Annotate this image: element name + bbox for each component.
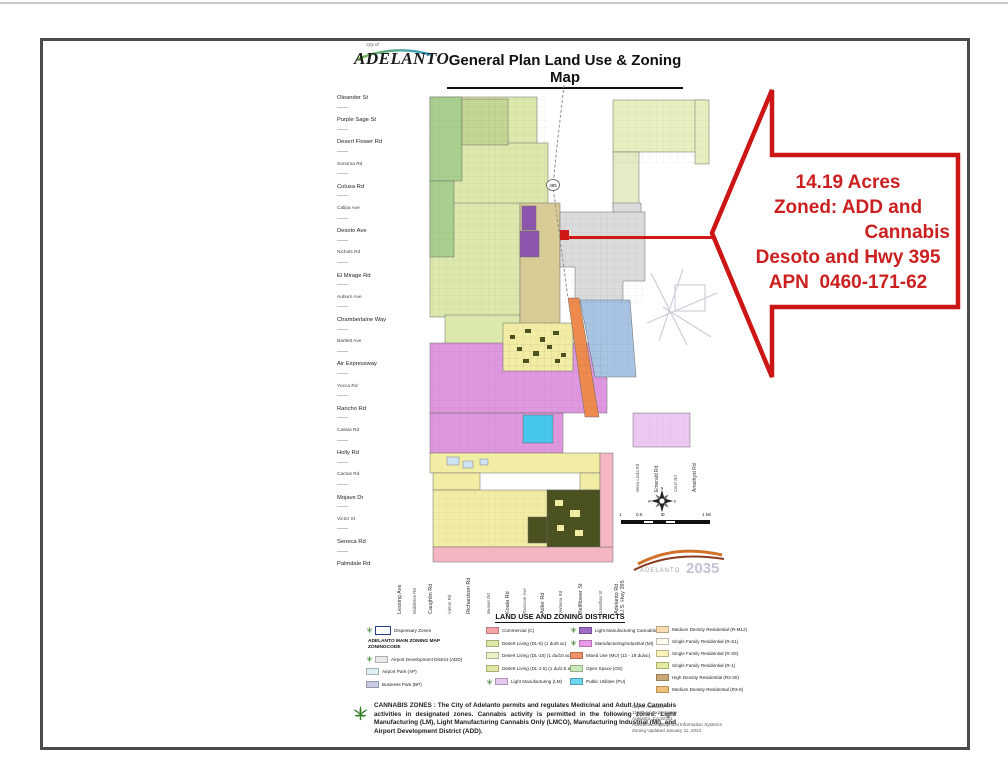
legend-row: Medium Density Residential (R3-8) [656, 683, 747, 695]
legend-title: LAND USE AND ZONING DISTRICTS [430, 606, 690, 624]
street-label: Purple Sage St [337, 117, 376, 123]
legend-label: Airport Development District (ADD) [391, 657, 462, 662]
page-title: General Plan Land Use & Zoning Map [447, 52, 683, 89]
logo-city-of: City of [366, 42, 379, 47]
legend-row: High Density Residential (R3-30) [656, 672, 747, 684]
street-label: Air Expressway [337, 361, 377, 367]
street-label: Desert Flower Rd [337, 139, 382, 145]
legend-label: Manufacturing/Industrial (MI) [595, 641, 653, 646]
legend-label: Mixed Use (MU) (12 - 18 du/ac) [586, 653, 650, 658]
street-minor-bar [337, 462, 348, 463]
legend-row: Desert Living (DL-2.5) (1 du/2.5 ac) [486, 662, 574, 675]
legend-swatch [495, 678, 508, 685]
street-minor-bar [337, 218, 348, 219]
legend-label: Medium Density Residential (R3-8) [672, 687, 743, 692]
street-label: Mojave Dr [337, 495, 363, 501]
legend-column: Medium Density Residential (R-M12)Single… [656, 624, 747, 695]
logo-name: ADELANTO [354, 49, 449, 69]
cannabis-leaf-icon [366, 655, 373, 663]
legend-label: Commercial (C) [502, 628, 534, 633]
street-label: Middleton Rd [412, 556, 417, 614]
street-minor-bar [337, 373, 348, 374]
legend-row: Single Family Residential (R-S1) [656, 636, 747, 648]
legend-label: Light Manufacturing (LM) [511, 679, 562, 684]
legend-label: Business Park (BP) [382, 682, 422, 687]
legend-row: Single Family Residential (R-1) [656, 660, 747, 672]
page: City of ADELANTO General Plan Land Use &… [0, 0, 1008, 778]
street-label: Auburn Ave [337, 295, 362, 300]
legend-row: Business Park (BP) [366, 678, 462, 691]
callout-line-acres: 14.19 Acres [742, 170, 954, 195]
legend-label: Public Utilities (PU) [586, 679, 625, 684]
legend-swatch [570, 665, 583, 672]
scale-label: 1 [619, 512, 622, 517]
cannabis-note: CANNABIS ZONES : The City of Adelanto pe… [374, 702, 676, 736]
street-label: Amethyst Rd [692, 440, 698, 492]
street-label: Victor St [337, 517, 355, 522]
legend-swatch [375, 656, 388, 663]
legend-column: Commercial (C)Desert Living (DL-5) (1 du… [486, 624, 574, 688]
street-label: Court Rd [673, 440, 678, 492]
street-minor-bar [337, 440, 348, 441]
scale-label: 1 Mi [702, 512, 711, 517]
cannabis-leaf-icon [366, 626, 373, 634]
street-minor-bar [337, 417, 348, 418]
legend-label: Single Family Residential (R-S1) [672, 639, 738, 644]
legend-swatch [366, 681, 379, 688]
street-label: Cassia Rd [337, 428, 359, 433]
legend-row: Light Manufacturing Cannabis Only [570, 624, 667, 637]
svg-text:ADELANTO: ADELANTO [640, 568, 680, 574]
legend-row: Medium Density Residential (R-M12) [656, 624, 747, 636]
street-minor-bar [337, 395, 348, 396]
legend-row: Light Manufacturing (LM) [486, 675, 574, 688]
top-divider [0, 2, 1008, 4]
legend-swatch [486, 640, 499, 647]
legend-label: Dispensary Zones [394, 628, 431, 633]
street-minor-bar [337, 129, 348, 130]
zoning-map-header-line: ZONINGCODE [368, 645, 462, 652]
street-minor-bar [337, 107, 348, 108]
scale-label: 0.5 [636, 512, 642, 517]
legend-swatch [570, 652, 583, 659]
street-label: Colusa Rd [337, 184, 364, 190]
street-minor-bar [337, 240, 348, 241]
legend-label: Open Space (OS) [586, 666, 623, 671]
svg-text:W: W [648, 499, 652, 503]
street-label: Bartlett Ave [337, 339, 361, 344]
street-minor-bar [337, 151, 348, 152]
legend-swatch [366, 668, 379, 675]
legend-column: Light Manufacturing Cannabis OnlyManufac… [570, 624, 667, 688]
legend-row: Public Utilities (PU) [570, 675, 667, 688]
street-minor-bar [337, 329, 348, 330]
legend-row: Commercial (C) [486, 624, 574, 637]
scale-label: 0 [662, 512, 665, 517]
legend-label: Airport Park (AP) [382, 669, 417, 674]
street-label: Yucca Rd [337, 384, 358, 389]
cannabis-leaf-icon [570, 639, 577, 647]
legend-row: Open Space (OS) [570, 662, 667, 675]
legend-swatch [656, 650, 669, 657]
legend-swatch [570, 678, 583, 685]
street-label: El Mirage Rd [337, 273, 371, 279]
highway-shield: 395 [547, 180, 560, 191]
street-minor-bar [337, 484, 348, 485]
street-label: Sonoma Rd [337, 162, 362, 167]
street-label: Palmdale Rd [337, 561, 370, 567]
legend-swatch [486, 652, 499, 659]
legend-swatch [656, 638, 669, 645]
street-minor-bar [337, 306, 348, 307]
legend-swatch [656, 686, 669, 693]
callout-line-apn: APN 0460-171-62 [742, 270, 954, 295]
street-label: Mesa Linda Rd [635, 440, 640, 492]
svg-text:2035: 2035 [686, 560, 719, 577]
street-label: Emerald Rd [654, 440, 660, 492]
svg-text:395: 395 [549, 183, 557, 188]
legend-label: Single Family Residential (R-S5) [672, 651, 738, 656]
legend-swatch [486, 627, 499, 634]
credits-block: City of Adelanto11600 Air ExpresswayAdel… [632, 704, 762, 734]
legend-swatch [579, 627, 592, 634]
legend-row: Dispensary Zones [366, 624, 462, 637]
legend-swatch [579, 640, 592, 647]
legend-row: Mixed Use (MU) (12 - 18 du/ac) [570, 650, 667, 663]
street-label: Calipa Ave [337, 206, 360, 211]
legend-row: Airport Park (AP) [366, 666, 462, 679]
legend-row: Desert Living (DL-10) (1 du/10 ac) [486, 650, 574, 663]
legend-column: Dispensary ZonesADELANTO MAIN ZONING MAP… [366, 624, 462, 691]
street-label: Seneca Rd [337, 539, 366, 545]
street-label: Nichols Rd [337, 250, 360, 255]
callout-line-location: Desoto and Hwy 395 [742, 245, 954, 270]
credit-line: Zoning Updated January 11, 2024 [632, 728, 762, 734]
legend-swatch [375, 626, 391, 635]
street-minor-bar [337, 528, 348, 529]
street-minor-bar [337, 506, 348, 507]
street-label: Lessing Ave [397, 556, 403, 614]
legend-label: Medium Density Residential (R-M12) [672, 627, 747, 632]
svg-text:E: E [674, 499, 676, 503]
svg-text:N: N [661, 486, 664, 490]
street-label: Rancho Rd [337, 406, 366, 412]
plan-2035-logo: ADELANTO 2035 [630, 546, 730, 578]
scale-bar: 1 0.5 0 1 Mi [618, 512, 728, 528]
street-minor-bar [337, 284, 348, 285]
cannabis-leaf-icon [570, 626, 577, 634]
legend-row: Manufacturing/Industrial (MI) [570, 637, 667, 650]
zoning-map-header: ADELANTO MAIN ZONING MAPZONINGCODE [366, 637, 462, 653]
callout-line-cannabis: Cannabis [742, 220, 954, 245]
street-minor-bar [337, 173, 348, 174]
legend-row: Single Family Residential (R-S5) [656, 648, 747, 660]
callout-text: 14.19 Acres Zoned: ADD and Cannabis Deso… [742, 170, 954, 295]
legend-swatch [486, 665, 499, 672]
street-minor-bar [337, 262, 348, 263]
street-minor-bar [337, 551, 348, 552]
street-label: Cactus Rd [337, 472, 359, 477]
legend-label: High Density Residential (R3-30) [672, 675, 739, 680]
legend-label: Desert Living (DL-5) (1 du/5 ac) [502, 641, 566, 646]
street-minor-bar [337, 195, 348, 196]
adelanto-city-logo: City of ADELANTO [352, 42, 438, 82]
legend-swatch [656, 674, 669, 681]
callout-line-zoned: Zoned: ADD and [742, 195, 954, 220]
legend-label: Desert Living (DL-10) (1 du/10 ac) [502, 653, 571, 658]
zoning-map: 395 [425, 85, 725, 582]
cannabis-leaf-icon [352, 705, 369, 724]
cannabis-leaf-icon [486, 678, 493, 686]
street-label: Holly Rd [337, 450, 359, 456]
street-label: Oleander St [337, 95, 368, 101]
street-minor-bar [337, 351, 348, 352]
leader-line [567, 236, 713, 239]
legend-row: Desert Living (DL-5) (1 du/5 ac) [486, 637, 574, 650]
legend-swatch [656, 662, 669, 669]
legend-label: Single Family Residential (R-1) [672, 663, 735, 668]
legend-label: Desert Living (DL-2.5) (1 du/2.5 ac) [502, 666, 574, 671]
street-label: Chamberlaine Way [337, 317, 386, 323]
street-label: Desoto Ave [337, 228, 367, 234]
legend-row: Airport Development District (ADD) [366, 653, 462, 666]
legend-swatch [656, 626, 669, 633]
